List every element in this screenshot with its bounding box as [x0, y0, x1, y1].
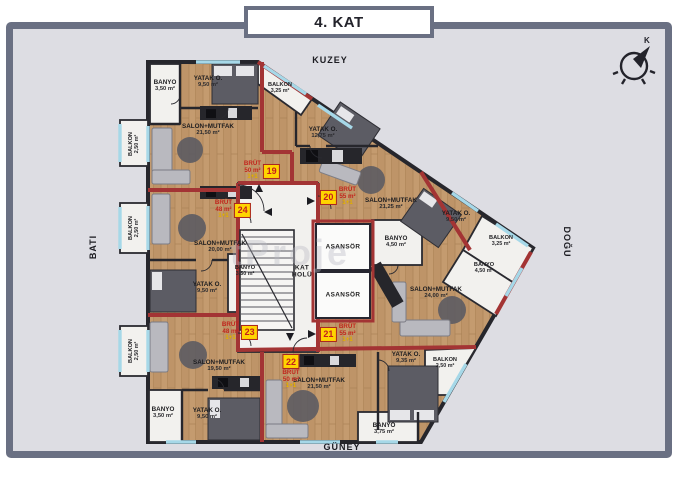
- unit-tag-21: 21 BRÜT 55 m² 1+1: [320, 324, 356, 344]
- room-label-salon-19: SALON+MUTFAK21,50 m²: [182, 123, 234, 137]
- room-label-balkon-24: BALKON2,50 m²: [128, 216, 140, 240]
- floor-plan-page: tProje 4. KAT KUZEY GÜNEY BATI DOĞU K KA…: [0, 0, 679, 480]
- room-label-banyo-24: BANYO3,50 m²: [235, 265, 255, 277]
- room-label-balkon-21: BALKON3,25 m²: [489, 235, 513, 247]
- floor-title: 4. KAT: [244, 6, 434, 38]
- room-label-balkon-22: BALKON2,50 m²: [433, 357, 457, 369]
- unit-tag-22: 22 BRÜT 50 m² 1+1: [282, 354, 299, 390]
- room-label-balkon-20: BALKON3,25 m²: [268, 82, 292, 94]
- room-label-yatak-22: YATAK O.9,35 m²: [392, 351, 421, 365]
- room-label-yatak-24: YATAK O.9,50 m²: [193, 281, 222, 295]
- floor-title-text: 4. KAT: [314, 14, 363, 31]
- room-label-salon-22: SALON+MUTFAK21,50 m²: [293, 377, 345, 391]
- room-label-banyo-23: BANYO3,50 m²: [152, 406, 175, 420]
- unit-number-21: 21: [320, 327, 337, 342]
- hall-label: KAT HOLÜ: [292, 265, 312, 280]
- room-label-yatak-19: YATAK O.9,50 m²: [194, 75, 223, 89]
- unit-number-24: 24: [234, 203, 251, 218]
- direction-label-east: DOĞU: [562, 227, 572, 258]
- elevator-label-2: ASANSÖR: [326, 292, 361, 299]
- room-banyo-19: [150, 64, 180, 124]
- unit-tag-19: 19 BRÜT 50 m² 1+1: [244, 161, 280, 181]
- room-label-banyo-19: BANYO3,50 m²: [154, 79, 177, 93]
- direction-label-south: GÜNEY: [323, 442, 360, 452]
- unit-tag-24: 24 BRÜT 48 m² 1+1: [215, 200, 251, 220]
- room-label-salon-23: SALON+MUTFAK19,50 m²: [193, 359, 245, 373]
- unit-tag-20: 20 BRÜT 55 m² 1+1: [320, 187, 356, 207]
- unit-tag-23: 23 BRÜT 48 m² 1+1: [222, 322, 258, 342]
- room-label-salon-24: SALON+MUTFAK20,00 m²: [194, 240, 246, 254]
- room-label-salon-20: SALON+MUTFAK21,25 m²: [365, 197, 417, 211]
- compass-icon: [613, 46, 655, 84]
- direction-label-west: BATI: [88, 235, 98, 259]
- elevator-label-1: ASANSÖR: [326, 244, 361, 251]
- compass-north-letter: K: [644, 36, 650, 45]
- unit-number-20: 20: [320, 190, 337, 205]
- room-label-banyo-21: BANYO4,50 m²: [474, 262, 494, 274]
- room-label-yatak-20: YATAK O.12,75 m²: [309, 126, 338, 140]
- room-label-salon-21: SALON+MUTFAK24,00 m²: [410, 286, 462, 300]
- unit-number-22: 22: [283, 354, 300, 369]
- room-label-yatak-21: YATAK O.9,50 m²: [442, 210, 471, 224]
- unit-number-19: 19: [263, 164, 280, 179]
- room-label-balkon-23: BALKON2,50 m²: [128, 339, 140, 363]
- room-label-yatak-23: YATAK O.9,50 m²: [193, 407, 222, 421]
- room-label-banyo-22: BANYO3,75 m²: [373, 422, 396, 436]
- room-label-banyo-20: BANYO4,50 m²: [385, 235, 408, 249]
- unit-number-23: 23: [241, 325, 258, 340]
- direction-label-north: KUZEY: [312, 55, 348, 65]
- room-label-balkon-19: BALKON2,50 m²: [128, 132, 140, 156]
